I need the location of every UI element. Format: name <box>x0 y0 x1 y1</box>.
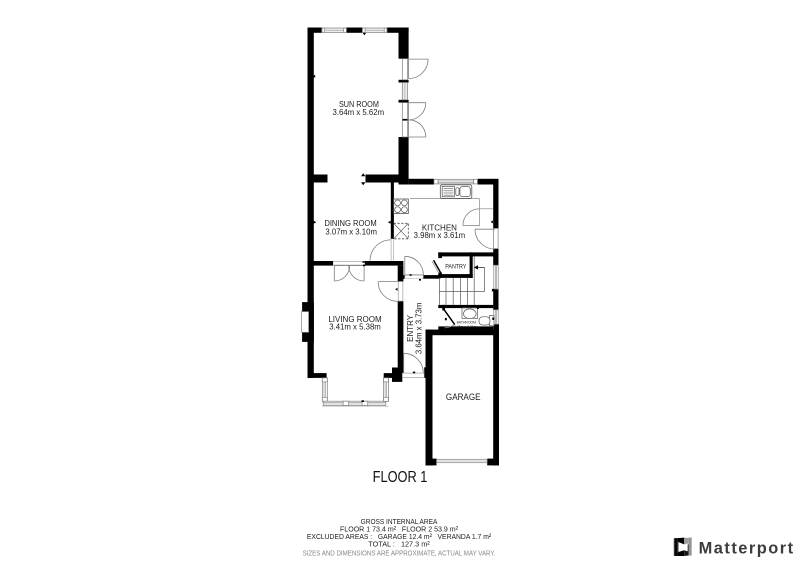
svg-text:3.64m x 5.62m: 3.64m x 5.62m <box>333 108 385 117</box>
svg-text:FLOOR 1: FLOOR 1 <box>373 469 428 487</box>
svg-text:1.95m x 0.91m: 1.95m x 0.91m <box>454 325 477 329</box>
svg-text:SIZES AND DIMENSIONS ARE APPRO: SIZES AND DIMENSIONS ARE APPROXIMATE, AC… <box>303 550 496 558</box>
svg-text:3.98m x 3.61m: 3.98m x 3.61m <box>414 231 466 240</box>
svg-text:Matterport: Matterport <box>699 540 795 558</box>
svg-text:3.07m x 3.10m: 3.07m x 3.10m <box>325 228 377 237</box>
svg-text:3.41m x 5.38m: 3.41m x 5.38m <box>329 323 381 332</box>
svg-text:TOTAL : 127.3 m²: TOTAL : 127.3 m² <box>368 540 430 549</box>
svg-text:3.64m x 3.73m: 3.64m x 3.73m <box>414 303 423 355</box>
svg-text:PANTRY: PANTRY <box>445 264 466 270</box>
svg-text:GARAGE: GARAGE <box>446 392 481 403</box>
